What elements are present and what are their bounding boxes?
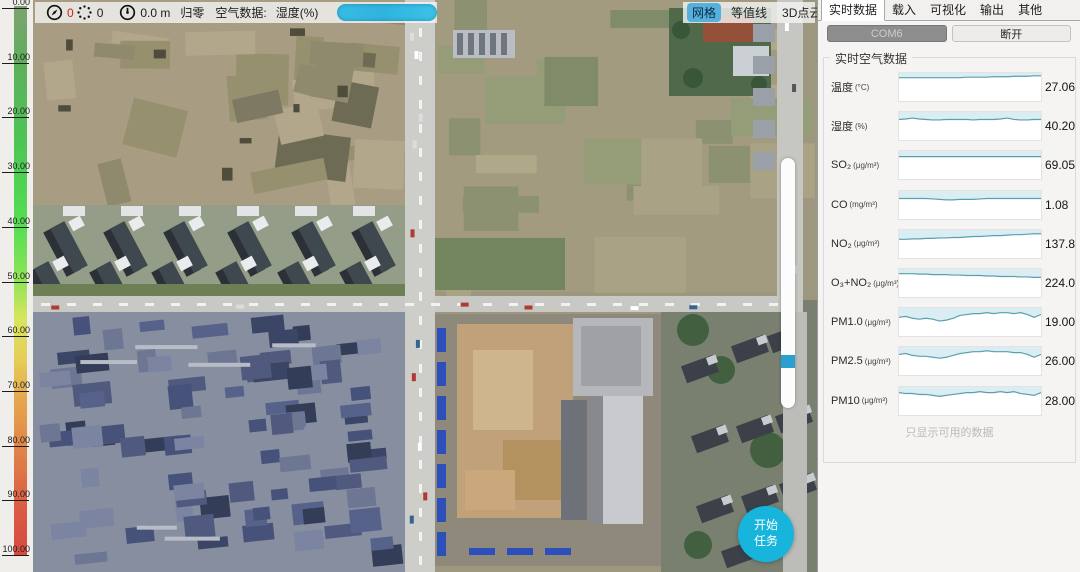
disconnect-button[interactable]: 断开 (952, 25, 1072, 42)
colorbar-tick-label: 0.00 (12, 0, 30, 7)
tab-output[interactable]: 输出 (973, 0, 1011, 20)
colorbar-tick-label: 40.00 (7, 217, 30, 226)
colorbar-tick (2, 500, 29, 501)
metric-sparkline (898, 190, 1042, 220)
connection-row: COM6 断开 (827, 25, 1071, 42)
colorbar-tick-label: 50.00 (7, 272, 30, 281)
metric-row: PM1.0(μg/m³) 19.00 (824, 307, 1075, 339)
realtime-air-data-group: 实时空气数据 温度(°C) 27.06 湿度(%) 40.20 SO₂(μg/m… (823, 57, 1076, 463)
zero-button[interactable]: 归零 (180, 4, 204, 21)
contour-button[interactable]: 等值线 (726, 3, 772, 22)
colorbar-tick-label: 90.00 (7, 490, 30, 499)
start-task-line2: 任务 (754, 534, 778, 550)
metric-sparkline (898, 386, 1042, 416)
metric-value: 1.08 (1045, 190, 1080, 220)
gauge-icon (119, 4, 136, 21)
altitude-value: 0.0 m (140, 6, 170, 20)
metric-value: 19.00 (1045, 307, 1080, 337)
metric-label: 湿度(%) (831, 111, 903, 141)
metric-sparkline (898, 346, 1042, 376)
metric-row: 温度(°C) 27.06 (824, 72, 1075, 104)
metric-row: CO(mg/m³) 1.08 (824, 190, 1075, 222)
footer-note: 只显示可用的数据 (824, 424, 1075, 440)
metric-value: 137.8 (1045, 229, 1080, 259)
group-title: 实时空气数据 (830, 50, 912, 67)
metric-sparkline (898, 150, 1042, 180)
metric-label: CO(mg/m³) (831, 190, 903, 220)
colorbar-tick (2, 391, 29, 392)
tab-other[interactable]: 其他 (1011, 0, 1049, 20)
com-port-button[interactable]: COM6 (827, 25, 947, 42)
colorbar-tick (2, 446, 29, 447)
colorbar-tick (2, 282, 29, 283)
colorbar-tick-label: 30.00 (7, 162, 30, 171)
tab-realtime[interactable]: 实时数据 (821, 0, 885, 21)
metric-value: 40.20 (1045, 111, 1080, 141)
metric-sparkline (898, 307, 1042, 337)
colorbar-tick (2, 555, 29, 556)
grid-button[interactable]: 网格 (687, 3, 721, 22)
colorbar-tick-label: 10.00 (7, 53, 30, 62)
slider-handle[interactable] (781, 355, 795, 368)
metric-row: PM2.5(μg/m³) 26.00 (824, 346, 1075, 378)
app-window: { "colorbar": { "ticks": ["0.00","10.00"… (0, 0, 1080, 572)
map-layer-buttons: 网格 等值线 3D点云 (683, 2, 815, 23)
colorbar-tick-label: 100.00 (2, 545, 30, 554)
metric-label: SO₂(μg/m³) (831, 150, 903, 180)
colorbar-tick (2, 336, 29, 337)
colorbar-tick-label: 20.00 (7, 107, 30, 116)
colorbar-tick (2, 117, 29, 118)
metric-value: 27.06 (1045, 72, 1080, 102)
metric-sparkline (898, 72, 1042, 102)
metric-label: O₃+NO₂(μg/m³) (831, 268, 903, 298)
metric-value: 26.00 (1045, 346, 1080, 376)
metric-sparkline (898, 111, 1042, 141)
start-task-line1: 开始 (754, 518, 778, 534)
map-canvas[interactable] (33, 0, 817, 572)
metric-row: O₃+NO₂(μg/m³) 224.0 (824, 268, 1075, 300)
metric-sparkline (898, 268, 1042, 298)
metric-label: NO₂(μg/m³) (831, 229, 903, 259)
colorbar-tick-label: 80.00 (7, 436, 30, 445)
colorbar-gradient (14, 6, 27, 555)
metric-label: PM10(μg/m³) (831, 386, 903, 416)
metric-row: PM10(μg/m³) 28.00 (824, 386, 1075, 418)
colorbar-tick (2, 63, 29, 64)
tab-load[interactable]: 载入 (885, 0, 923, 20)
map-zoom-slider[interactable] (781, 158, 795, 408)
colorbar-tick (2, 172, 29, 173)
right-panel: 实时数据载入可视化输出其他 COM6 断开 实时空气数据 温度(°C) 27.0… (817, 0, 1080, 572)
metric-label: PM2.5(μg/m³) (831, 346, 903, 376)
colorbar-tick (2, 227, 29, 228)
metric-value: 28.00 (1045, 386, 1080, 416)
metric-row: 湿度(%) 40.20 (824, 111, 1075, 143)
metric-row: NO₂(μg/m³) 137.8 (824, 229, 1075, 261)
metric-value: 69.05 (1045, 150, 1080, 180)
tab-visualize[interactable]: 可视化 (923, 0, 973, 20)
colorbar-tick (2, 8, 29, 9)
start-task-button[interactable]: 开始 任务 (738, 506, 794, 562)
air-metric-select[interactable]: 湿度(%) (276, 4, 319, 21)
colorbar-tick-label: 60.00 (7, 326, 30, 335)
air-data-label: 空气数据: (215, 4, 266, 21)
colorbar-tick-label: 70.00 (7, 381, 30, 390)
panel-tabs: 实时数据载入可视化输出其他 (818, 0, 1080, 21)
heading-value: 0 (67, 6, 74, 20)
metric-label: 温度(°C) (831, 72, 903, 102)
satellite-count-value: 0 (97, 6, 104, 20)
metric-row: SO₂(μg/m³) 69.05 (824, 150, 1075, 182)
status-pill (337, 4, 437, 21)
metric-value: 224.0 (1045, 268, 1080, 298)
metric-sparkline (898, 229, 1042, 259)
satellite-imagery (33, 0, 817, 572)
satellite-dots-icon (76, 4, 93, 21)
colorbar: 0.0010.0020.0030.0040.0050.0060.0070.008… (0, 0, 33, 572)
metric-label: PM1.0(μg/m³) (831, 307, 903, 337)
compass-icon (46, 4, 63, 21)
